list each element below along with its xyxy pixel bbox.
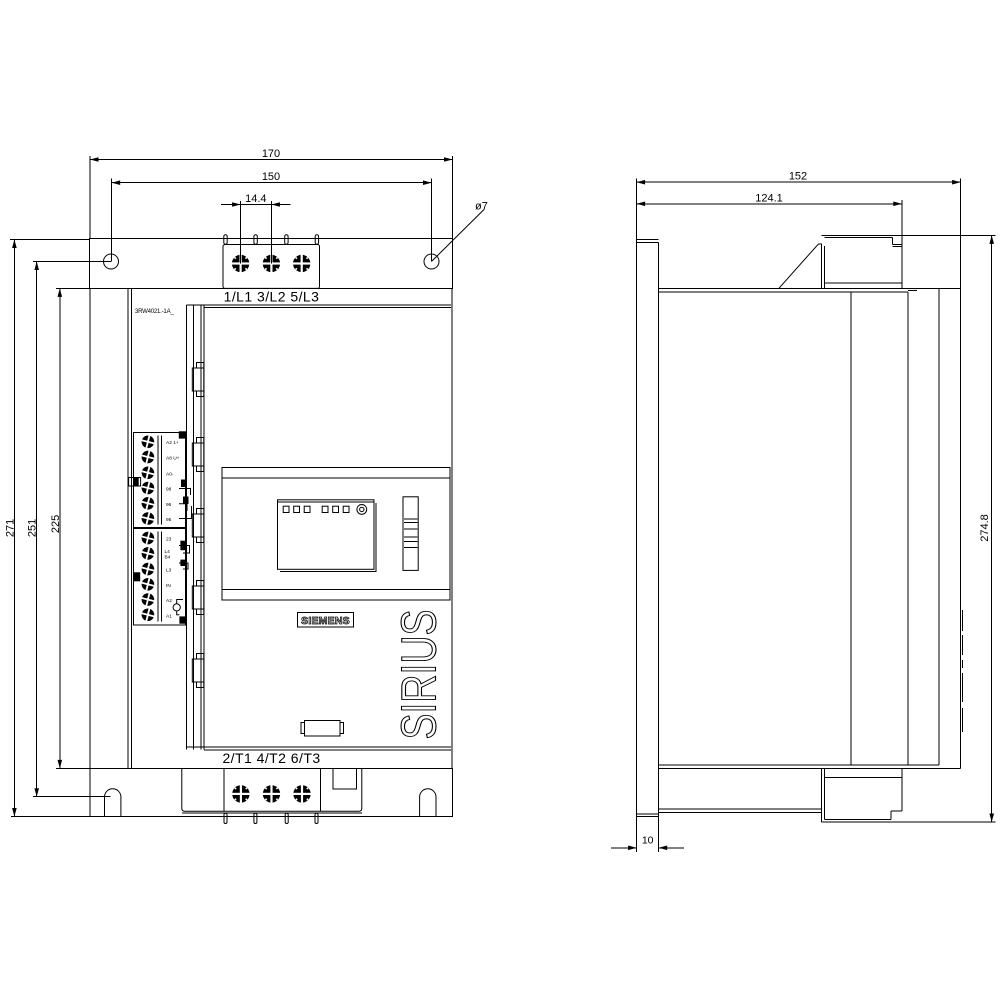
svg-text:10: 10 bbox=[642, 835, 654, 847]
svg-text:225: 225 bbox=[50, 515, 62, 533]
svg-text:A0-: A0- bbox=[166, 471, 174, 477]
svg-text:3RW4021.-1A_: 3RW4021.-1A_ bbox=[135, 309, 174, 315]
svg-text:2/T1 4/T2 6/T3: 2/T1 4/T2 6/T3 bbox=[222, 750, 320, 766]
svg-text:A8 U+: A8 U+ bbox=[166, 456, 180, 462]
svg-text:96: 96 bbox=[166, 502, 172, 508]
svg-text:170: 170 bbox=[262, 148, 280, 160]
svg-text:A1: A1 bbox=[166, 613, 172, 619]
svg-text:152: 152 bbox=[789, 171, 807, 183]
svg-text:124.1: 124.1 bbox=[755, 192, 783, 204]
svg-text:1/L1 3/L2 5/L3: 1/L1 3/L2 5/L3 bbox=[224, 288, 320, 304]
svg-text:A2: A2 bbox=[166, 598, 172, 604]
svg-text:A2 1+: A2 1+ bbox=[166, 440, 179, 446]
svg-text:150: 150 bbox=[262, 171, 280, 183]
svg-text:L4: L4 bbox=[165, 549, 171, 555]
svg-text:14.4: 14.4 bbox=[245, 193, 266, 205]
svg-text:IN: IN bbox=[166, 583, 171, 589]
svg-text:ø7: ø7 bbox=[475, 201, 488, 213]
svg-text:251: 251 bbox=[27, 519, 39, 537]
svg-text:95: 95 bbox=[166, 517, 172, 523]
svg-text:B4: B4 bbox=[165, 555, 171, 561]
svg-text:271: 271 bbox=[4, 519, 16, 537]
svg-text:SIRIUS: SIRIUS bbox=[393, 610, 447, 740]
svg-text:98: 98 bbox=[166, 487, 172, 493]
svg-text:SIEMENS: SIEMENS bbox=[301, 615, 350, 627]
svg-text:L3: L3 bbox=[166, 568, 172, 574]
svg-text:23: 23 bbox=[166, 537, 172, 543]
svg-text:274.8: 274.8 bbox=[979, 514, 991, 542]
